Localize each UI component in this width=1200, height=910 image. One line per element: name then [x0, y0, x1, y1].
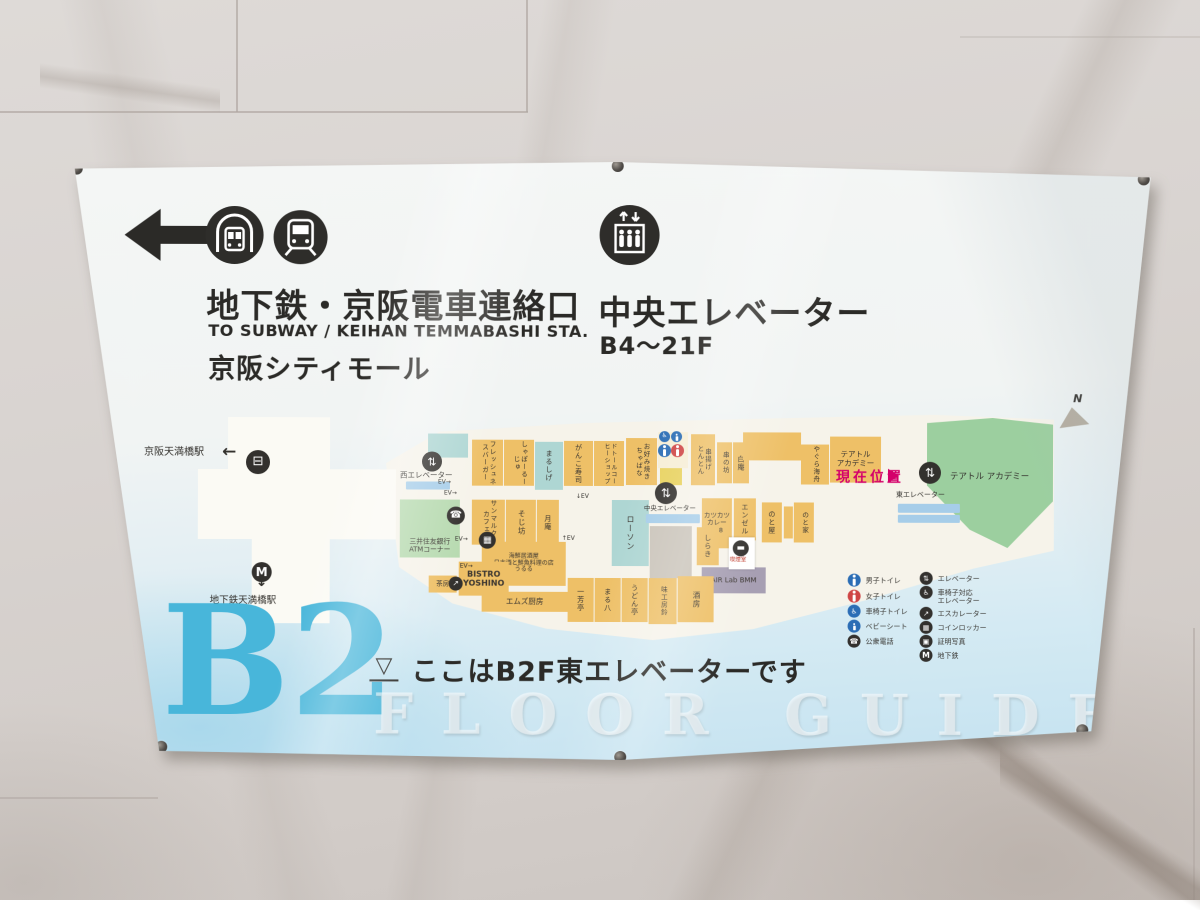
- wheel-legend-icon: ♿: [848, 605, 861, 618]
- floor-guide-watermark: FLOOR GUIDE: [373, 681, 1138, 749]
- legend-item: ▦コインロッカー: [920, 621, 987, 634]
- marble-vein: [1000, 740, 1200, 910]
- marble-vein: [40, 0, 220, 170]
- legend-label: 車椅子トイレ: [866, 605, 908, 617]
- legend-item: 男子トイレ: [848, 574, 901, 587]
- legend-item: ♿車椅子対応 エレベーター: [920, 586, 980, 606]
- legend-label: 公衆電話: [866, 635, 894, 646]
- tile-seam: [0, 111, 528, 113]
- floor-label: B2: [161, 585, 396, 738]
- legend-item: ↗エスカレーター: [920, 607, 987, 620]
- male-legend-icon: [848, 574, 861, 587]
- person-pictogram: [852, 579, 856, 586]
- legend-item: ♿車椅子トイレ: [848, 605, 908, 618]
- baby-legend-icon: [848, 620, 861, 633]
- phone-legend-icon: ☎: [848, 635, 861, 648]
- tile-seam: [236, 0, 238, 112]
- floor-guide-sign: 地下鉄・京阪電車連絡口 TO SUBWAY / KEIHAN TEMMABASH…: [69, 159, 1153, 766]
- mounting-screw: [1076, 724, 1088, 736]
- legend-label: 地下鉄: [937, 649, 958, 660]
- legend-label: ベビーシート: [866, 620, 908, 632]
- mounting-screw: [1138, 173, 1150, 185]
- tile-seam: [1193, 628, 1195, 900]
- sign-panel: 地下鉄・京阪電車連絡口 TO SUBWAY / KEIHAN TEMMABASH…: [69, 159, 1153, 766]
- legend-label: 証明写真: [938, 635, 966, 646]
- ev-legend-icon: ⇅: [920, 572, 933, 585]
- legend-item: 女子トイレ: [848, 590, 901, 603]
- esc-legend-icon: ↗: [920, 607, 933, 620]
- legend-label: 車椅子対応 エレベーター: [938, 586, 980, 606]
- mounting-screw: [71, 163, 83, 175]
- you-are-here-marker: ▽: [369, 653, 398, 681]
- tile-seam: [960, 36, 1200, 38]
- legend-item: ☎公衆電話: [848, 635, 894, 648]
- tile-seam: [526, 0, 528, 112]
- tile-seam: [0, 797, 158, 799]
- mounting-screw: [155, 741, 167, 753]
- legend-item: M地下鉄: [919, 649, 958, 662]
- wheel-legend-icon: ♿: [920, 586, 933, 599]
- legend-label: エスカレーター: [938, 607, 987, 619]
- person-pictogram: [853, 626, 855, 630]
- mounting-screw: [614, 751, 626, 763]
- person-pictogram: [852, 595, 856, 602]
- female-legend-icon: [848, 590, 861, 603]
- legend-label: エレベーター: [938, 572, 980, 584]
- locker-legend-icon: ▦: [920, 621, 933, 634]
- mounting-screw: [612, 160, 624, 172]
- legend-label: コインロッカー: [938, 621, 987, 633]
- photo-legend-icon: ▣: [920, 635, 933, 648]
- subway-legend-icon: M: [919, 649, 932, 662]
- legend-item: ⇅エレベーター: [920, 572, 980, 585]
- legend-item: ▣証明写真: [920, 635, 966, 648]
- legend-label: 女子トイレ: [866, 590, 901, 601]
- legend-item: ベビーシート: [848, 620, 908, 633]
- legend-label: 男子トイレ: [866, 574, 901, 585]
